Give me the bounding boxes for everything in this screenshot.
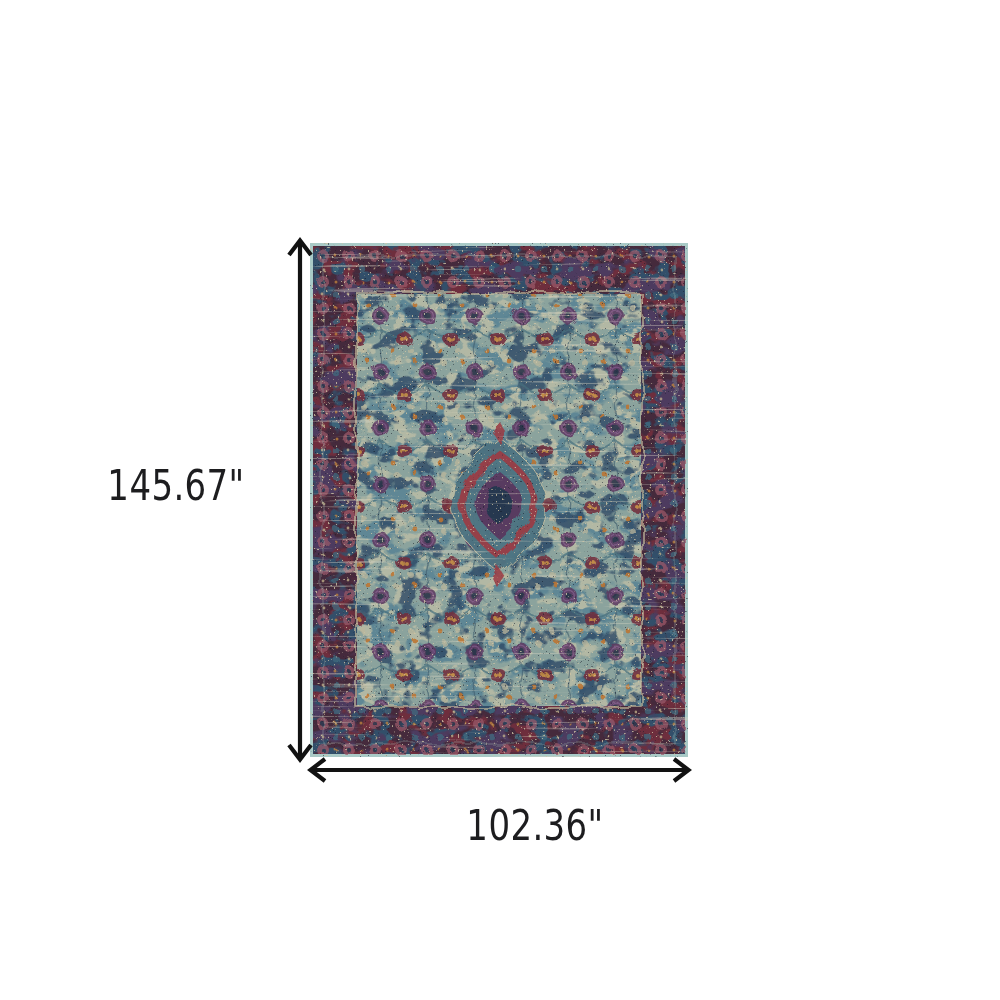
rug-graphic [310,243,688,757]
product-dimension-figure: 145.67" 102.36" [0,0,1000,1000]
rug-distress-texture [310,243,688,757]
height-dimension-arrow [289,241,311,760]
width-dimension-label: 102.36" [440,802,630,849]
rug-image [310,243,688,757]
width-dimension-arrow [311,759,689,781]
height-dimension-label: 145.67" [81,462,271,509]
